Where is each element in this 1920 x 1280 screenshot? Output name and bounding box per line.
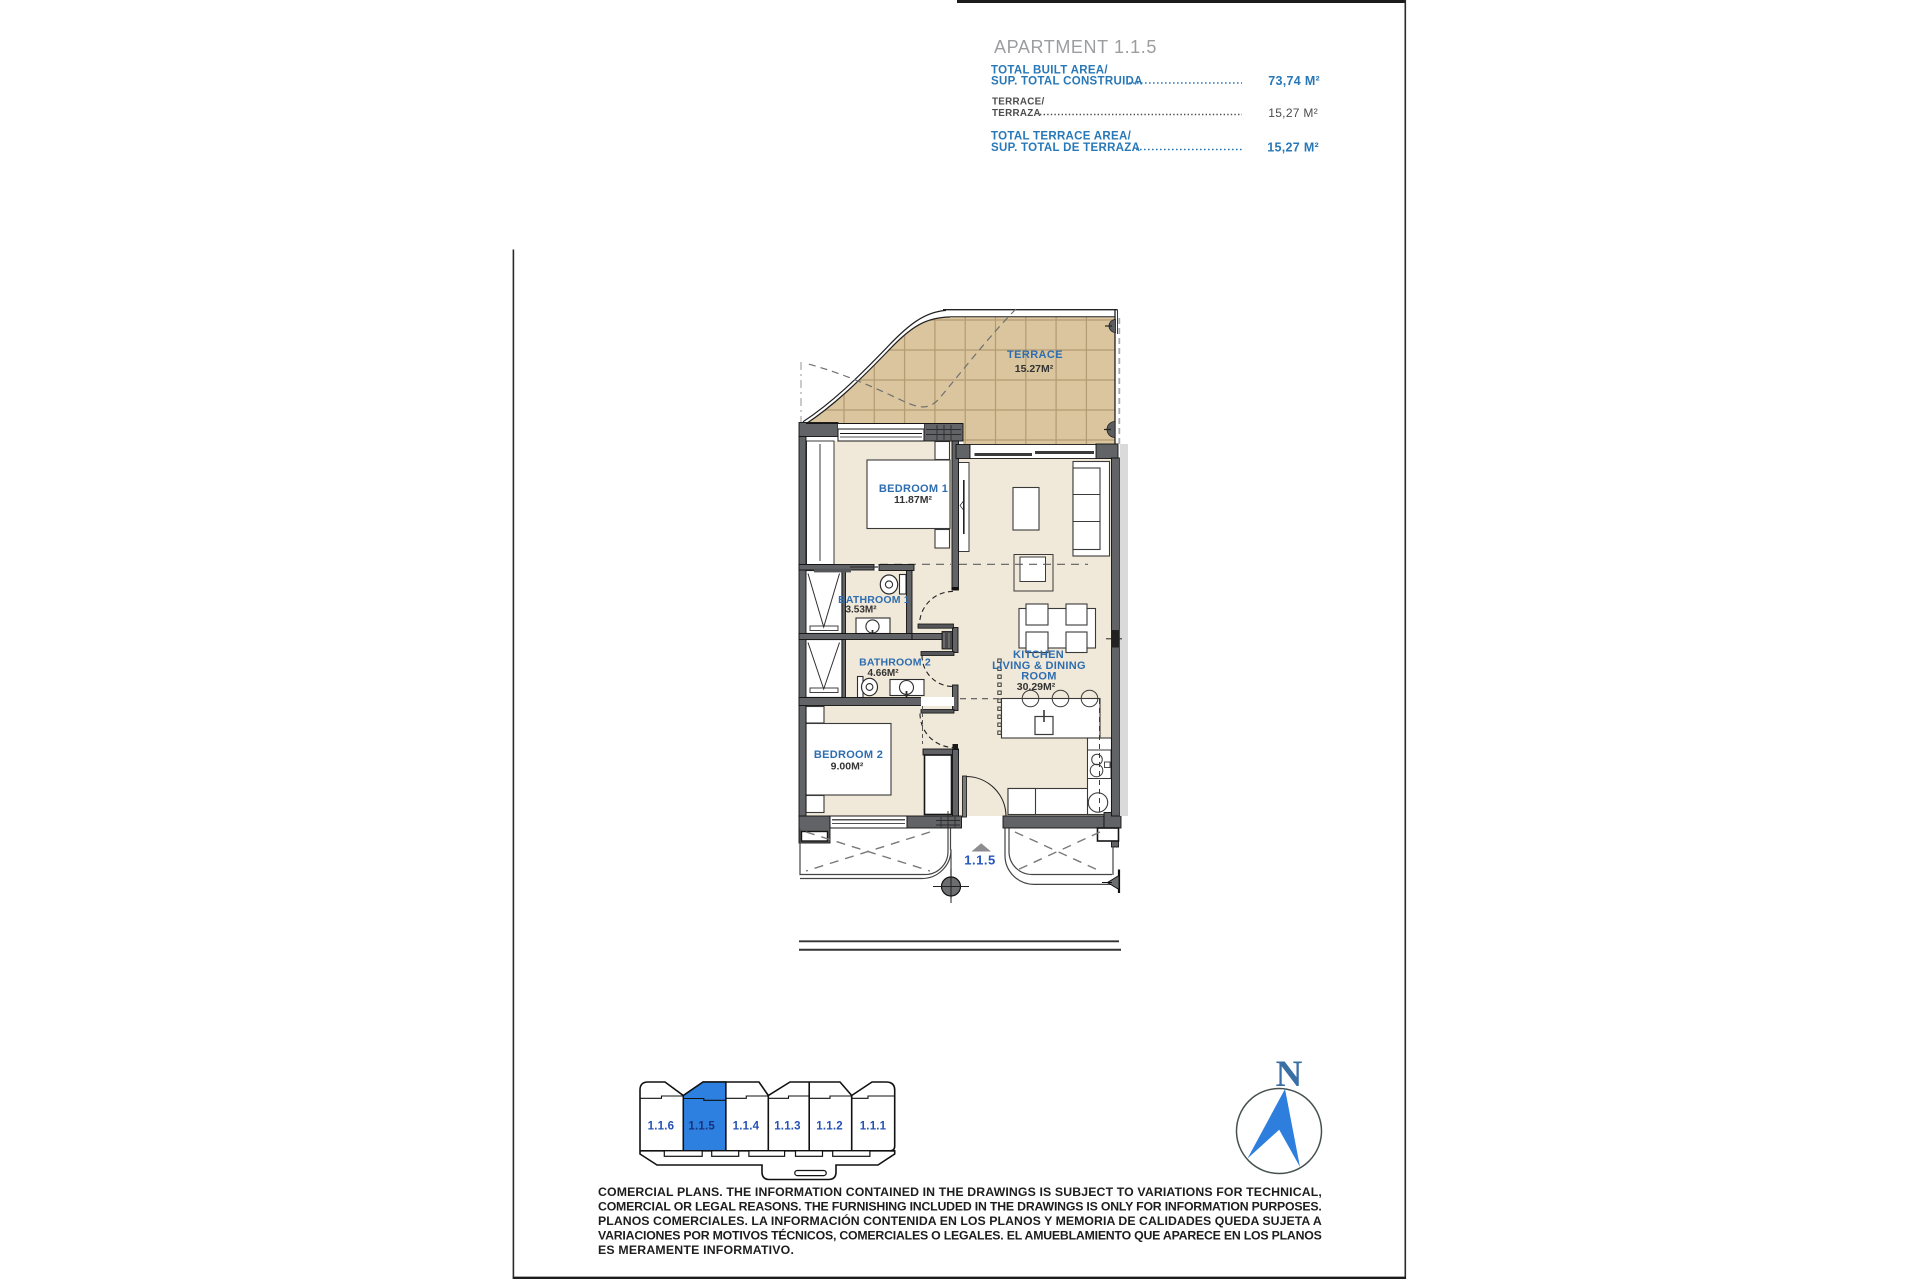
svg-text:30.29M²: 30.29M² — [1017, 681, 1056, 693]
svg-text:TERRAZA: TERRAZA — [992, 108, 1041, 119]
svg-text:SUP. TOTAL CONSTRUIDA: SUP. TOTAL CONSTRUIDA — [991, 76, 1143, 88]
svg-text:SUP. TOTAL DE TERRAZA: SUP. TOTAL DE TERRAZA — [991, 142, 1140, 154]
svg-text:N: N — [1276, 1054, 1303, 1095]
svg-text:73,74 M²: 73,74 M² — [1268, 74, 1320, 88]
svg-text:1.1.2: 1.1.2 — [816, 1121, 843, 1133]
svg-text:1.1.3: 1.1.3 — [774, 1121, 801, 1133]
svg-text:1.1.4: 1.1.4 — [733, 1121, 760, 1133]
svg-text:15,27 M²: 15,27 M² — [1268, 106, 1318, 120]
svg-text:11.87M²: 11.87M² — [894, 494, 932, 506]
svg-text:1.1.6: 1.1.6 — [648, 1121, 675, 1133]
svg-text:1.1.5: 1.1.5 — [688, 1121, 715, 1133]
svg-text:15.27M²: 15.27M² — [1015, 363, 1054, 375]
svg-text:1.1.5: 1.1.5 — [964, 853, 995, 868]
svg-text:4.66M²: 4.66M² — [867, 668, 899, 679]
svg-text:COMERCIAL OR LEGAL REASONS. TH: COMERCIAL OR LEGAL REASONS. THE FURNISHI… — [598, 1200, 1322, 1214]
svg-text:15,27 M²: 15,27 M² — [1267, 141, 1319, 155]
svg-text:BEDROOM 2: BEDROOM 2 — [814, 749, 883, 761]
svg-text:TERRACE: TERRACE — [1007, 349, 1063, 361]
svg-text:APARTMENT 1.1.5: APARTMENT 1.1.5 — [994, 37, 1158, 57]
svg-text:TOTAL TERRACE AREA/: TOTAL TERRACE AREA/ — [991, 131, 1132, 143]
svg-text:COMERCIAL PLANS. THE INFORMATI: COMERCIAL PLANS. THE INFORMATION CONTAIN… — [598, 1185, 1322, 1199]
svg-text:TERRACE/: TERRACE/ — [992, 97, 1044, 108]
svg-text:3.53M²: 3.53M² — [845, 605, 877, 616]
svg-text:ES MERAMENTE INFORMATIVO.: ES MERAMENTE INFORMATIVO. — [598, 1243, 794, 1257]
svg-text:PLANOS COMERCIALES. LA INFORMA: PLANOS COMERCIALES. LA INFORMACIÓN CONTE… — [598, 1213, 1322, 1228]
svg-text:BATHROOM 2: BATHROOM 2 — [859, 657, 931, 669]
svg-text:VARIACIONES POR MOTIVOS TÉCNIC: VARIACIONES POR MOTIVOS TÉCNICOS, COMERC… — [598, 1228, 1322, 1243]
svg-text:9.00M²: 9.00M² — [831, 761, 864, 773]
svg-text:1.1.1: 1.1.1 — [860, 1121, 887, 1133]
